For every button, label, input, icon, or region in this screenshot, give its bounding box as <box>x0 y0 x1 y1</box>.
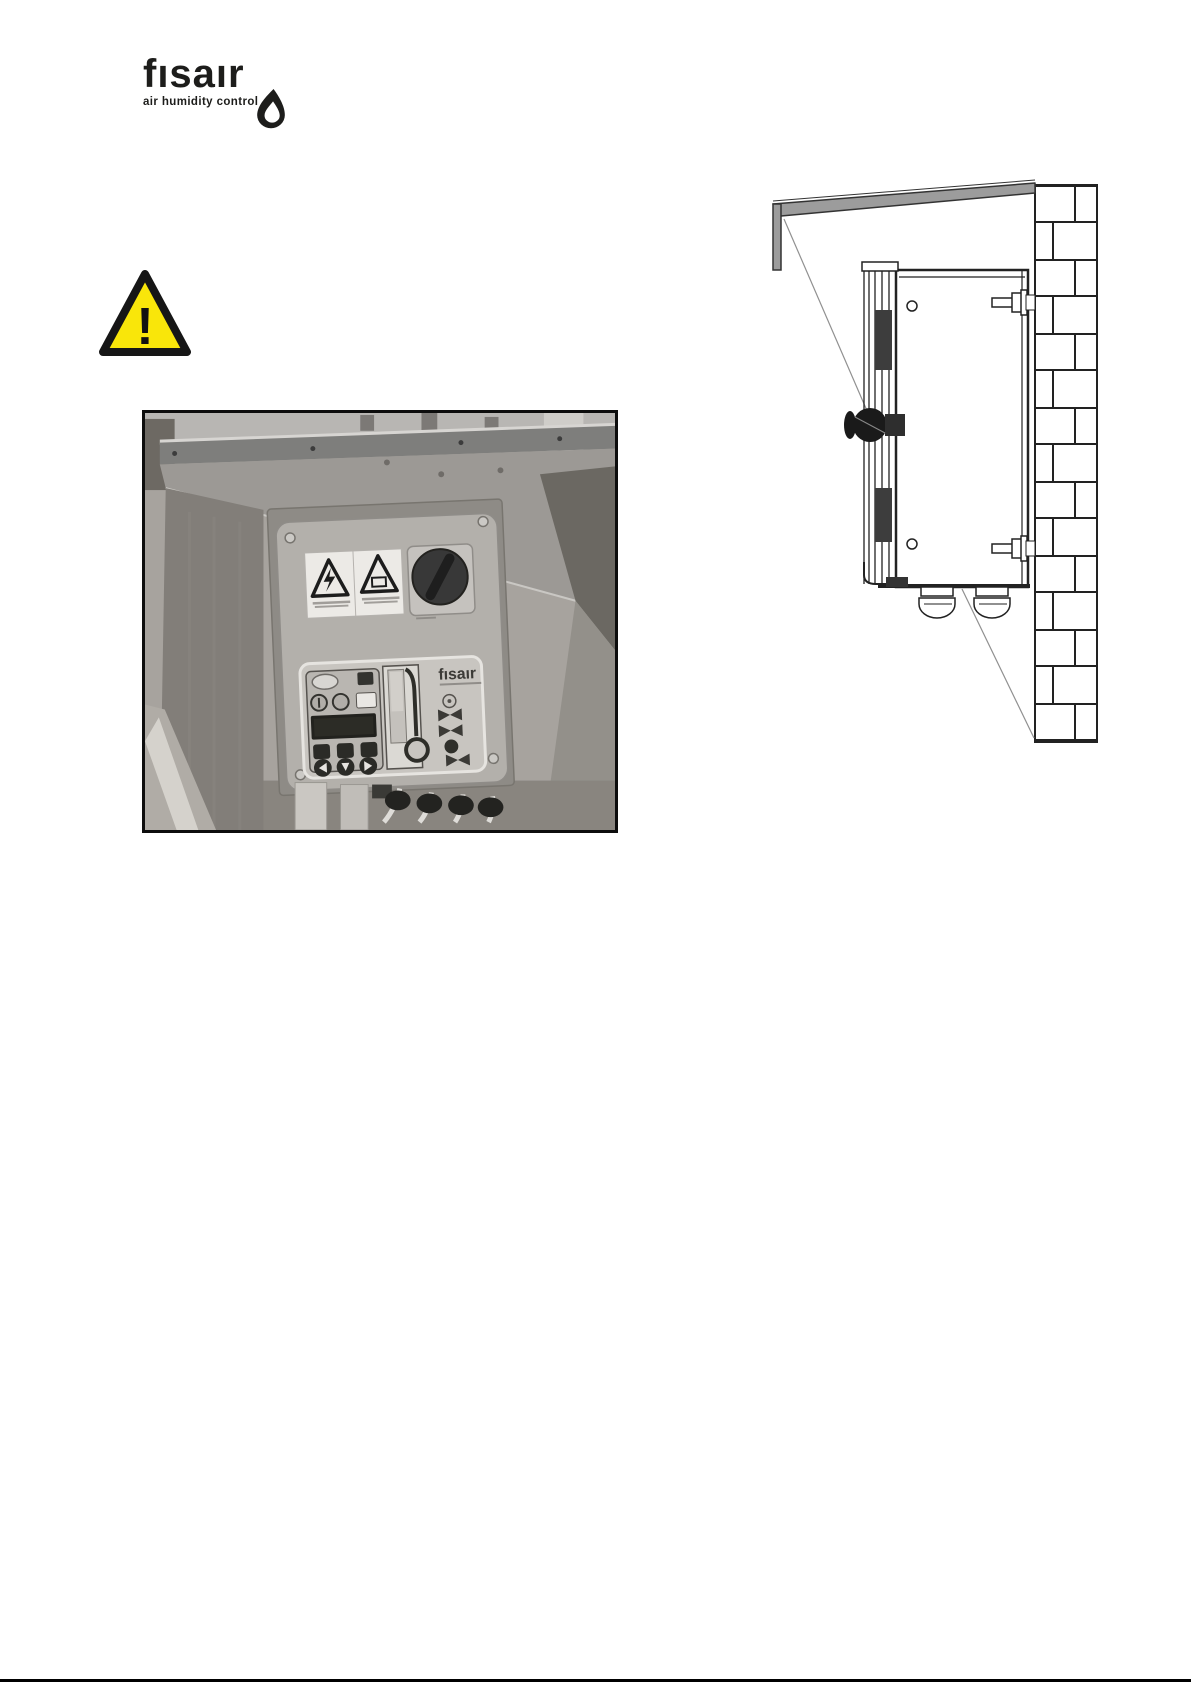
cable-gland <box>385 790 411 810</box>
cabinet-front-panel: fısaır <box>267 499 514 796</box>
logo-tagline: air humidity control <box>143 96 363 108</box>
panel-logo: fısaır <box>438 665 476 684</box>
keypad-key <box>360 742 377 758</box>
fisair-logo: fısaır air humidity control <box>143 55 363 145</box>
warning-exclamation: ! <box>136 298 153 356</box>
warning-triangle-icon: ! <box>98 266 192 360</box>
status-indicator <box>332 694 348 710</box>
hinge-block <box>875 310 892 370</box>
side-hole <box>907 301 917 311</box>
panel-screw <box>488 753 498 763</box>
keypad-key <box>337 743 354 759</box>
logo-wordmark: fısaır <box>143 55 363 93</box>
panel-screw <box>478 516 488 526</box>
controller-panel: fısaır <box>300 656 487 778</box>
manual-page: fısaır air humidity control ! <box>0 0 1191 1685</box>
rotary-switch <box>407 544 475 620</box>
cable-gland <box>417 793 443 813</box>
reset-key <box>356 692 376 708</box>
diagram-cable-gland <box>919 587 955 618</box>
diagram-rain-hood <box>773 180 1035 270</box>
wall-mounting-diagram <box>700 172 1100 747</box>
controller-badge <box>312 674 338 690</box>
keypad-key <box>313 744 330 760</box>
panel-screw <box>285 533 295 543</box>
cable-gland <box>478 797 504 817</box>
pump-symbol <box>406 739 429 762</box>
guide-line <box>784 219 871 420</box>
water-drop-icon <box>255 88 287 135</box>
footer-rule <box>0 1679 1191 1682</box>
brick-wall <box>1035 185 1097 742</box>
diagram-cable-gland <box>974 587 1010 618</box>
control-cabinet-photo: fısaır <box>142 410 618 833</box>
cable-gland <box>448 795 474 815</box>
side-hole <box>907 539 917 549</box>
hinge-block <box>875 488 892 542</box>
warning-stickers <box>305 549 405 618</box>
